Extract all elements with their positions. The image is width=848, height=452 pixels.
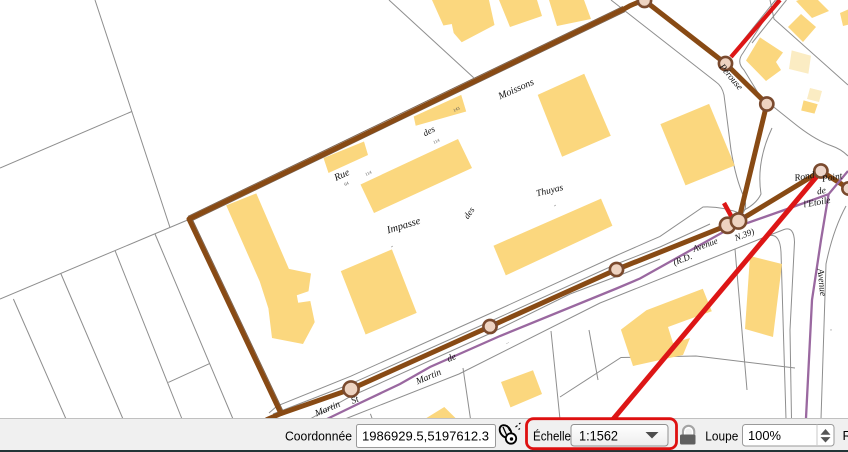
svg-text:1:1562: 1:1562: [579, 428, 618, 443]
svg-text:Loupe: Loupe: [705, 429, 738, 444]
svg-text:1986929.5,5197612.3: 1986929.5,5197612.3: [362, 429, 489, 444]
svg-text:R: R: [843, 428, 848, 443]
svg-text:100%: 100%: [748, 428, 781, 443]
svg-text:Coordonnée: Coordonnée: [285, 429, 352, 444]
svg-text:Échelle: Échelle: [533, 428, 571, 443]
